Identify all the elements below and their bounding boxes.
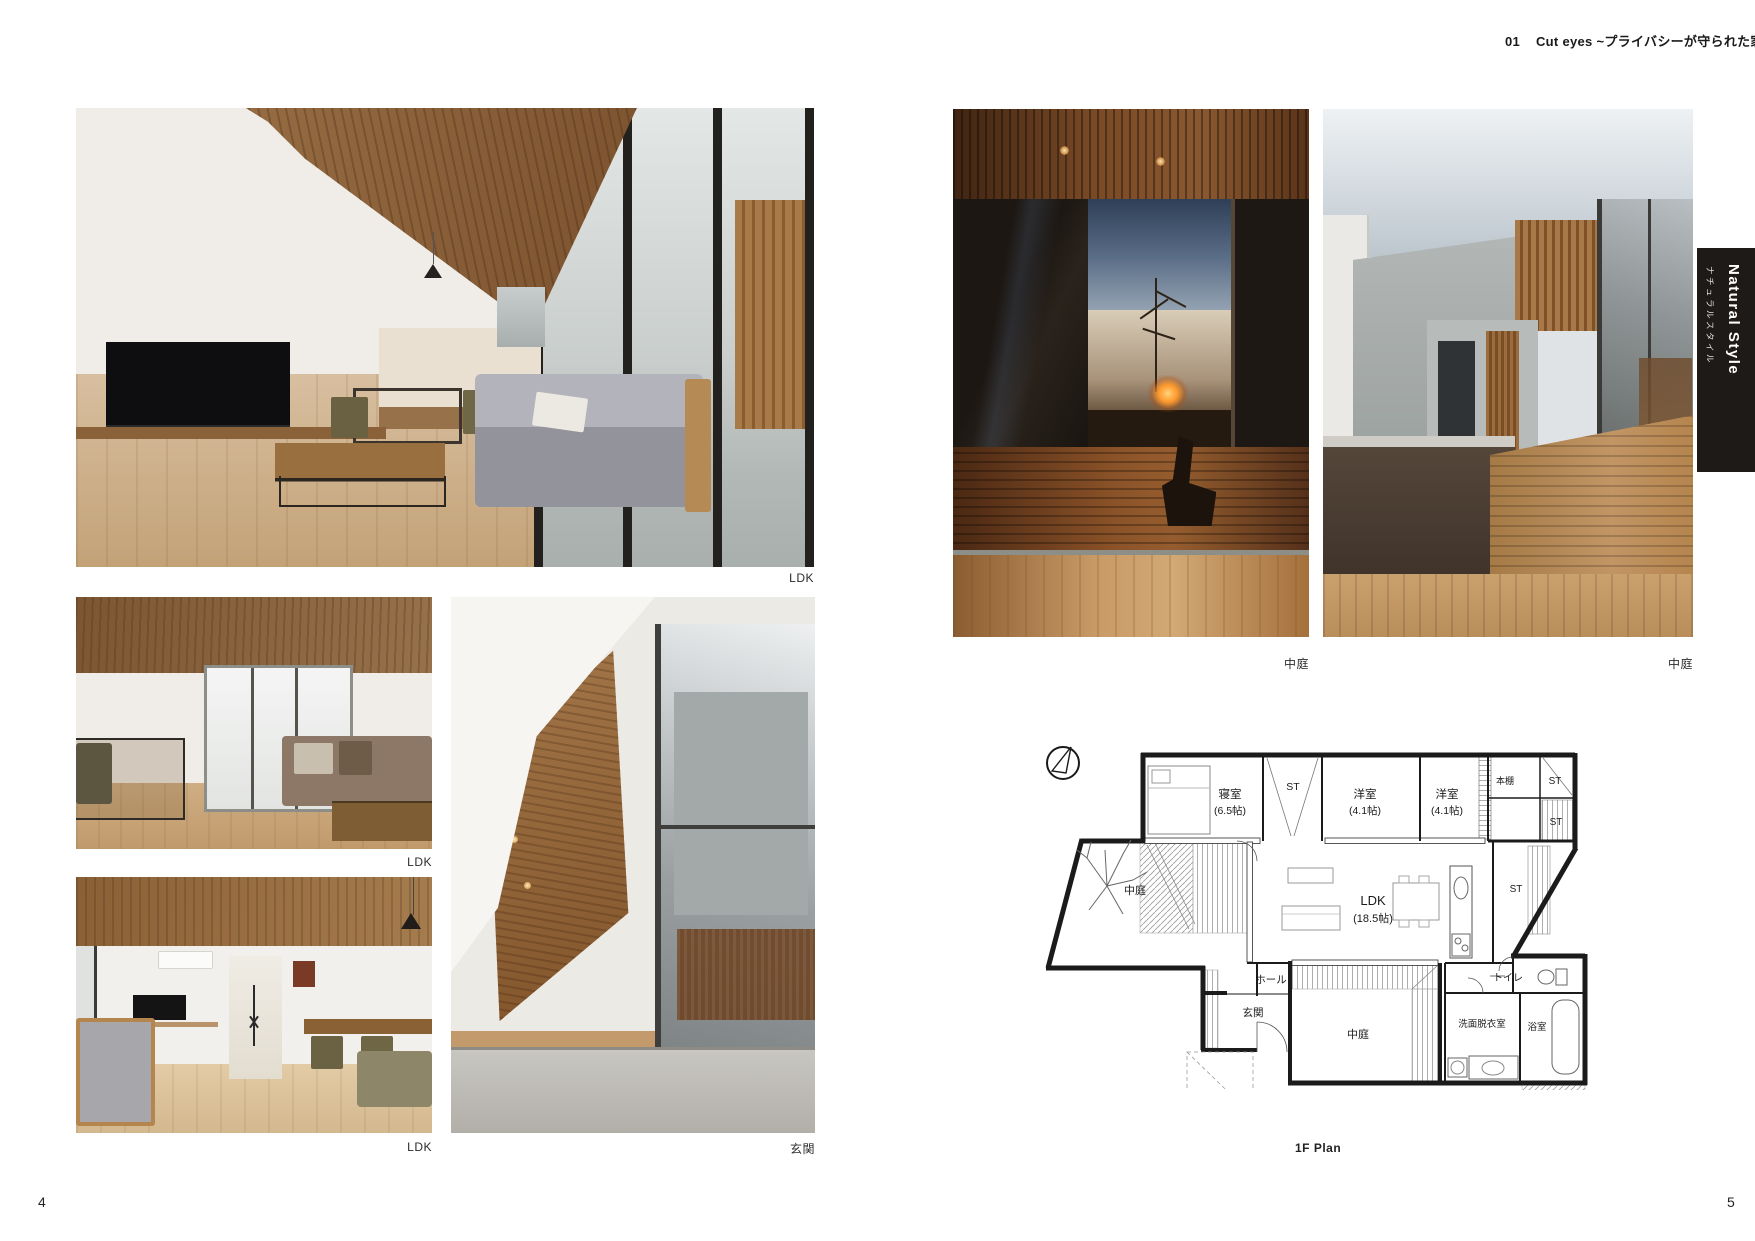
wood-ceiling [76,597,432,673]
wood-deck-front [1323,574,1693,637]
plan-label-entrance: 玄関 [1243,1006,1264,1019]
concrete-floor [451,1047,815,1133]
wood-deck-through-glass [677,929,815,1020]
plan-label-hall: ホール [1255,974,1287,986]
dining-chair [76,743,112,803]
plan-label-st: ST [1510,884,1523,895]
floor-plan: 寝室 (6.5帖) ST 洋室 (4.1帖) 洋室 (4.1帖) 本棚 ST S… [1035,738,1595,1090]
olive-sofa [357,1051,432,1107]
plan-label-ldk-size: (18.5帖) [1353,912,1393,925]
tab-title-en: Natural Style [1725,264,1742,375]
outside-building [674,692,809,915]
photo-ldk-main [76,108,814,567]
sofa-wood-arm [685,379,712,512]
wood-ceiling [953,109,1309,199]
photo-caption: LDK [76,1140,432,1154]
plan-label-bookshelf: 本棚 [1496,775,1514,786]
wood-slat-fence [735,200,808,430]
glass-pane [1231,199,1309,447]
magazine-spread: 01 Cut eyes ~プライバシーが守られた家~ Natural Style… [0,0,1755,1241]
television [106,342,291,428]
dining-table [353,388,462,444]
floor-plan-caption: 1F Plan [1295,1141,1341,1155]
page-header: 01 Cut eyes ~プライバシーが守られた家~ [1505,31,1755,50]
plan-label-room2-size: (4.1帖) [1431,804,1463,817]
photo-caption: 中庭 [953,655,1309,672]
camera-tripod [253,985,255,1046]
courtyard-opening [1088,199,1230,447]
header-title: Cut eyes ~プライバシーが守られた家~ [1536,34,1755,49]
plan-label-st: ST [1550,817,1563,828]
interior-floor [953,555,1309,637]
photo-entrance [451,597,815,1133]
photo-caption: 中庭 [1323,655,1693,672]
plan-label-room1: 洋室 [1354,787,1377,801]
plan-label-room2: 洋室 [1436,787,1459,801]
photo-caption: LDK [76,571,814,585]
plan-label-courtyard: 中庭 [1347,1027,1369,1041]
pendant-light [401,913,421,929]
plan-label-toilet: トイレ [1493,973,1523,984]
pendant-light [424,264,442,278]
tab-title-jp: ナチュラルスタイル [1704,266,1716,365]
gray-sofa [475,374,704,507]
plan-label-st: ST [1549,776,1562,787]
plan-label-room1-size: (4.1帖) [1349,804,1381,817]
wood-floor-edge [451,1031,655,1047]
soil-ground [1323,447,1515,579]
style-category-tab: Natural Style ナチュラルスタイル [1697,248,1755,472]
page-number-left: 4 [38,1194,46,1210]
range-hood [497,287,545,347]
dining-chair [331,397,368,438]
header-number: 01 [1505,34,1520,49]
wood-deck [953,447,1309,553]
plan-label-courtyard: 中庭 [1124,883,1146,897]
dining-table [304,1019,432,1034]
photo-ldk-2 [76,597,432,849]
wood-ceiling [76,877,432,946]
glass-pane [953,199,1093,447]
north-arrow-icon [1047,747,1079,779]
armchair [76,1018,155,1126]
photo-caption: 玄関 [451,1140,815,1157]
plan-label-washroom: 洗面脱衣室 [1458,1018,1506,1030]
photo-courtyard-evening [953,109,1309,637]
wood-slat-wall [1515,220,1600,331]
coffee-table [332,801,432,841]
photo-caption: LDK [76,855,432,869]
walls [1046,753,1587,1085]
photo-courtyard-day [1323,109,1693,637]
plan-label-bedroom: 寝室 [1219,787,1242,801]
air-conditioner [158,951,213,968]
plan-label-bathroom: 浴室 [1527,1021,1546,1033]
plan-label-st: ST [1286,781,1300,793]
plan-label-ldk: LDK [1360,893,1386,908]
courtyard-tree [1077,840,1147,914]
wall-art [293,961,314,987]
brown-sofa [282,736,432,807]
plan-label-bedroom-size: (6.5帖) [1214,804,1246,817]
bonfire [1148,375,1188,412]
dining-chair [311,1036,343,1069]
television [133,995,186,1021]
page-number-right: 5 [1727,1194,1735,1210]
photo-ldk-3 [76,877,432,1133]
coffee-table [275,443,445,507]
